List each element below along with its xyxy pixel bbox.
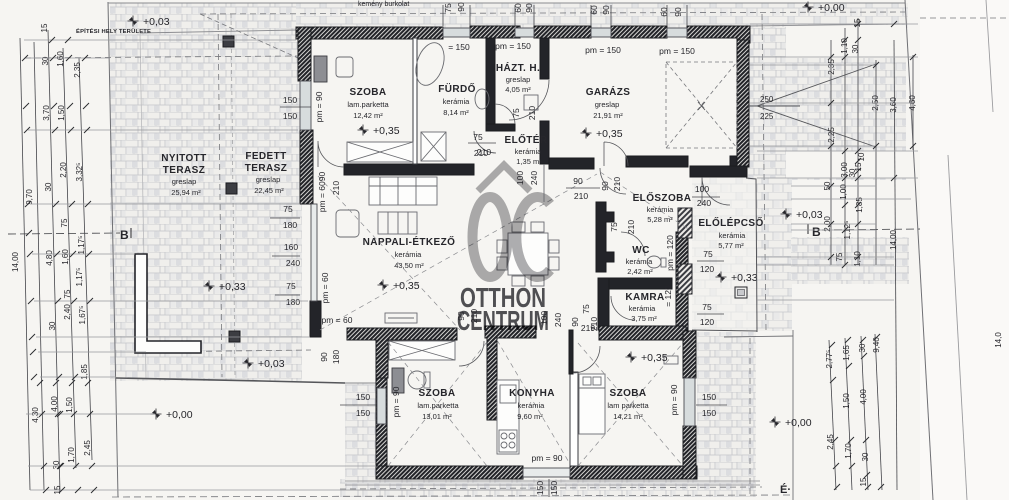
svg-text:+0,03: +0,03 xyxy=(258,358,285,370)
svg-text:30: 30 xyxy=(858,343,867,352)
svg-text:B: B xyxy=(812,225,821,239)
svg-text:14,00: 14,00 xyxy=(11,251,20,272)
svg-text:90: 90 xyxy=(573,176,583,186)
svg-text:pm = 120: pm = 120 xyxy=(665,235,675,271)
svg-text:NYITOTT: NYITOTT xyxy=(161,153,206,164)
svg-text:150: 150 xyxy=(356,408,370,418)
svg-text:1,70: 1,70 xyxy=(844,443,853,459)
svg-text:225: 225 xyxy=(760,112,774,121)
svg-text:kerámia: kerámia xyxy=(518,401,546,410)
svg-text:ELŐTÉR: ELŐTÉR xyxy=(505,133,548,146)
svg-text:90: 90 xyxy=(673,7,683,17)
svg-text:= 120: = 120 xyxy=(663,285,673,307)
svg-text:150: 150 xyxy=(283,111,297,121)
svg-text:greslap: greslap xyxy=(595,100,620,109)
svg-text:240: 240 xyxy=(697,198,711,208)
svg-text:75: 75 xyxy=(286,281,296,291)
svg-text:TERASZ: TERASZ xyxy=(245,163,287,174)
svg-text:240: 240 xyxy=(529,171,539,185)
svg-text:1,50: 1,50 xyxy=(65,397,74,413)
svg-text:+0,33: +0,33 xyxy=(731,272,758,284)
svg-text:21,91 m²: 21,91 m² xyxy=(593,111,623,120)
svg-text:14,0: 14,0 xyxy=(994,332,1003,348)
svg-text:+0,35: +0,35 xyxy=(373,125,400,137)
svg-text:150: 150 xyxy=(702,392,716,402)
svg-text:1,10: 1,10 xyxy=(853,251,862,267)
svg-text:pm = 90: pm = 90 xyxy=(532,453,563,463)
svg-text:75: 75 xyxy=(703,249,713,259)
svg-text:pm = 90: pm = 90 xyxy=(391,386,401,417)
svg-text:90: 90 xyxy=(601,5,611,15)
svg-text:3,32⁵: 3,32⁵ xyxy=(75,163,84,182)
svg-text:30: 30 xyxy=(48,321,57,330)
svg-text:kerámia: kerámia xyxy=(719,231,747,240)
svg-text:15: 15 xyxy=(40,23,49,32)
svg-text:210: 210 xyxy=(574,191,588,201)
svg-text:30: 30 xyxy=(851,44,860,53)
svg-text:KONYHA: KONYHA xyxy=(509,388,555,399)
svg-text:TERASZ: TERASZ xyxy=(163,165,205,176)
svg-text:90: 90 xyxy=(524,3,534,13)
svg-text:kerámia: kerámia xyxy=(443,97,471,106)
svg-text:90: 90 xyxy=(600,181,610,191)
svg-text:240: 240 xyxy=(553,313,563,327)
svg-text:1,60: 1,60 xyxy=(56,51,65,67)
svg-text:pm = 60: pm = 60 xyxy=(320,272,330,303)
svg-text:75: 75 xyxy=(511,108,521,118)
svg-text:12,42 m²: 12,42 m² xyxy=(353,111,383,120)
svg-text:+0,35: +0,35 xyxy=(393,280,420,292)
svg-text:3,75 m²: 3,75 m² xyxy=(631,314,657,323)
svg-text:1,17⁵: 1,17⁵ xyxy=(75,268,84,287)
svg-text:ELŐLÉPCSŐ: ELŐLÉPCSŐ xyxy=(698,216,763,229)
svg-text:WC: WC xyxy=(632,245,649,256)
svg-text:+0,00: +0,00 xyxy=(785,417,812,429)
svg-text:1,17⁵: 1,17⁵ xyxy=(77,236,86,255)
svg-text:pm = 90: pm = 90 xyxy=(314,91,324,122)
svg-text:= 150: = 150 xyxy=(448,42,470,52)
svg-text:pm = 150: pm = 150 xyxy=(495,41,531,51)
svg-text:14,21 m²: 14,21 m² xyxy=(613,412,643,421)
svg-text:+0,35: +0,35 xyxy=(641,352,668,364)
svg-text:ÉPÍTÉSI HELY TERÜLETE: ÉPÍTÉSI HELY TERÜLETE xyxy=(76,27,151,35)
svg-text:13,01 m²: 13,01 m² xyxy=(422,412,452,421)
svg-text:GARÁZS: GARÁZS xyxy=(586,85,631,98)
svg-text:ELŐSZOBA: ELŐSZOBA xyxy=(633,191,692,204)
svg-text:90: 90 xyxy=(319,352,329,362)
svg-text:kerámia: kerámia xyxy=(647,205,675,214)
svg-text:210: 210 xyxy=(612,177,622,191)
svg-text:kerámia: kerámia xyxy=(395,250,423,259)
svg-text:4,80: 4,80 xyxy=(45,250,54,266)
svg-text:90: 90 xyxy=(570,317,580,327)
svg-text:1,50: 1,50 xyxy=(842,393,851,409)
svg-text:60: 60 xyxy=(659,7,669,17)
svg-text:2,25: 2,25 xyxy=(827,127,836,143)
svg-text:kerámia: kerámia xyxy=(515,147,543,156)
svg-text:100: 100 xyxy=(695,184,709,194)
svg-text:15: 15 xyxy=(859,477,868,486)
svg-text:HÁZT. H.: HÁZT. H. xyxy=(496,61,540,74)
svg-text:FEDETT: FEDETT xyxy=(245,151,286,162)
svg-text:+0,00: +0,00 xyxy=(166,409,193,421)
svg-text:2,45: 2,45 xyxy=(83,440,92,456)
svg-text:pm = 150: pm = 150 xyxy=(659,46,695,56)
svg-text:1,85: 1,85 xyxy=(80,364,89,380)
svg-text:180: 180 xyxy=(331,350,341,364)
svg-text:pm = 90: pm = 90 xyxy=(669,384,679,415)
svg-text:+0,03: +0,03 xyxy=(796,209,823,221)
svg-text:É·: É· xyxy=(780,483,791,496)
svg-text:150: 150 xyxy=(535,481,545,495)
svg-text:75: 75 xyxy=(63,289,72,298)
svg-text:25,94 m²: 25,94 m² xyxy=(171,188,201,197)
svg-text:30: 30 xyxy=(44,182,53,191)
svg-text:160: 160 xyxy=(284,242,298,252)
svg-text:2,35: 2,35 xyxy=(73,62,82,78)
svg-text:180: 180 xyxy=(286,297,300,307)
svg-text:kerámia: kerámia xyxy=(626,257,654,266)
svg-text:120: 120 xyxy=(700,264,714,274)
svg-text:1,60: 1,60 xyxy=(61,249,70,265)
svg-text:2,42 m²: 2,42 m² xyxy=(627,267,653,276)
svg-text:100: 100 xyxy=(515,171,525,185)
svg-text:4,00: 4,00 xyxy=(859,389,868,405)
svg-text:210: 210 xyxy=(469,309,479,323)
svg-text:150: 150 xyxy=(356,392,370,402)
svg-text:lam.parketta: lam.parketta xyxy=(347,100,389,109)
svg-text:150: 150 xyxy=(549,481,559,495)
svg-text:60: 60 xyxy=(589,5,599,15)
svg-text:4,30: 4,30 xyxy=(31,407,40,423)
svg-text:15: 15 xyxy=(853,18,862,27)
svg-text:1,70: 1,70 xyxy=(67,447,76,463)
svg-text:2,77⁵: 2,77⁵ xyxy=(825,350,834,369)
svg-text:NAPPALI-ÉTKEZŐ: NAPPALI-ÉTKEZŐ xyxy=(363,235,456,248)
svg-text:180: 180 xyxy=(283,220,297,230)
svg-text:100: 100 xyxy=(539,311,549,325)
svg-text:9,40: 9,40 xyxy=(872,337,881,353)
svg-text:75: 75 xyxy=(609,222,619,232)
svg-text:+0,00: +0,00 xyxy=(818,2,845,14)
svg-text:+0,03: +0,03 xyxy=(143,16,170,28)
svg-text:30: 30 xyxy=(41,56,50,65)
svg-text:SZOBA: SZOBA xyxy=(419,388,456,399)
svg-text:5,28 m²: 5,28 m² xyxy=(647,215,673,224)
svg-text:1,35 m²: 1,35 m² xyxy=(516,157,542,166)
svg-text:90: 90 xyxy=(456,311,466,321)
svg-text:75: 75 xyxy=(581,304,591,314)
svg-text:kemény burkolat: kemény burkolat xyxy=(358,1,409,8)
svg-text:greslap: greslap xyxy=(172,177,197,186)
svg-text:lam.parketta: lam.parketta xyxy=(417,401,459,410)
svg-text:pm = 150: pm = 150 xyxy=(585,45,621,55)
svg-text:pm = 6090: pm = 6090 xyxy=(317,172,327,213)
svg-text:greslap: greslap xyxy=(506,75,531,84)
svg-text:240: 240 xyxy=(286,258,300,268)
svg-text:75: 75 xyxy=(473,132,483,142)
svg-text:SZOBA: SZOBA xyxy=(350,87,387,98)
svg-text:FÜRDŐ: FÜRDŐ xyxy=(438,82,476,95)
svg-text:150: 150 xyxy=(283,95,297,105)
svg-text:90: 90 xyxy=(456,2,466,12)
svg-text:210: 210 xyxy=(477,147,491,157)
svg-text:30: 30 xyxy=(861,452,870,461)
svg-text:75: 75 xyxy=(60,218,69,227)
svg-text:4,05 m²: 4,05 m² xyxy=(505,85,531,94)
svg-text:B: B xyxy=(120,228,129,242)
svg-text:9,60 m²: 9,60 m² xyxy=(517,412,543,421)
svg-text:75: 75 xyxy=(702,302,712,312)
svg-text:210: 210 xyxy=(331,181,341,195)
svg-text:43,50 m²: 43,50 m² xyxy=(394,261,424,270)
svg-text:SZOBA: SZOBA xyxy=(610,388,647,399)
svg-text:pm = 60: pm = 60 xyxy=(322,315,353,325)
svg-text:greslap: greslap xyxy=(256,175,281,184)
svg-text:75: 75 xyxy=(283,204,293,214)
svg-text:2,35: 2,35 xyxy=(827,59,836,75)
svg-text:60: 60 xyxy=(513,3,523,13)
svg-text:14,00: 14,00 xyxy=(889,229,898,250)
svg-text:+0,33: +0,33 xyxy=(219,281,246,293)
svg-text:75: 75 xyxy=(443,3,453,13)
svg-text:KAMRA: KAMRA xyxy=(625,292,664,303)
svg-text:210: 210 xyxy=(527,106,537,120)
svg-text:120: 120 xyxy=(700,317,714,327)
svg-text:1,67⁵: 1,67⁵ xyxy=(78,306,87,325)
svg-text:+0,35: +0,35 xyxy=(596,128,623,140)
svg-text:3,70: 3,70 xyxy=(42,105,51,121)
svg-text:2,20: 2,20 xyxy=(59,162,68,178)
svg-text:150: 150 xyxy=(702,408,716,418)
svg-text:210: 210 xyxy=(626,220,636,234)
svg-text:4,00: 4,00 xyxy=(50,396,59,412)
svg-text:3,60: 3,60 xyxy=(889,97,898,113)
svg-text:lam parketta: lam parketta xyxy=(607,401,649,410)
svg-text:kerámia: kerámia xyxy=(629,304,657,313)
svg-text:1,65: 1,65 xyxy=(842,345,851,361)
svg-text:5,77 m²: 5,77 m² xyxy=(718,241,744,250)
svg-text:219: 219 xyxy=(581,323,595,333)
svg-text:2,40: 2,40 xyxy=(63,304,72,320)
svg-text:8,14 m²: 8,14 m² xyxy=(443,108,469,117)
svg-text:1,50: 1,50 xyxy=(57,105,66,121)
svg-text:22,45 m²: 22,45 m² xyxy=(254,186,284,195)
